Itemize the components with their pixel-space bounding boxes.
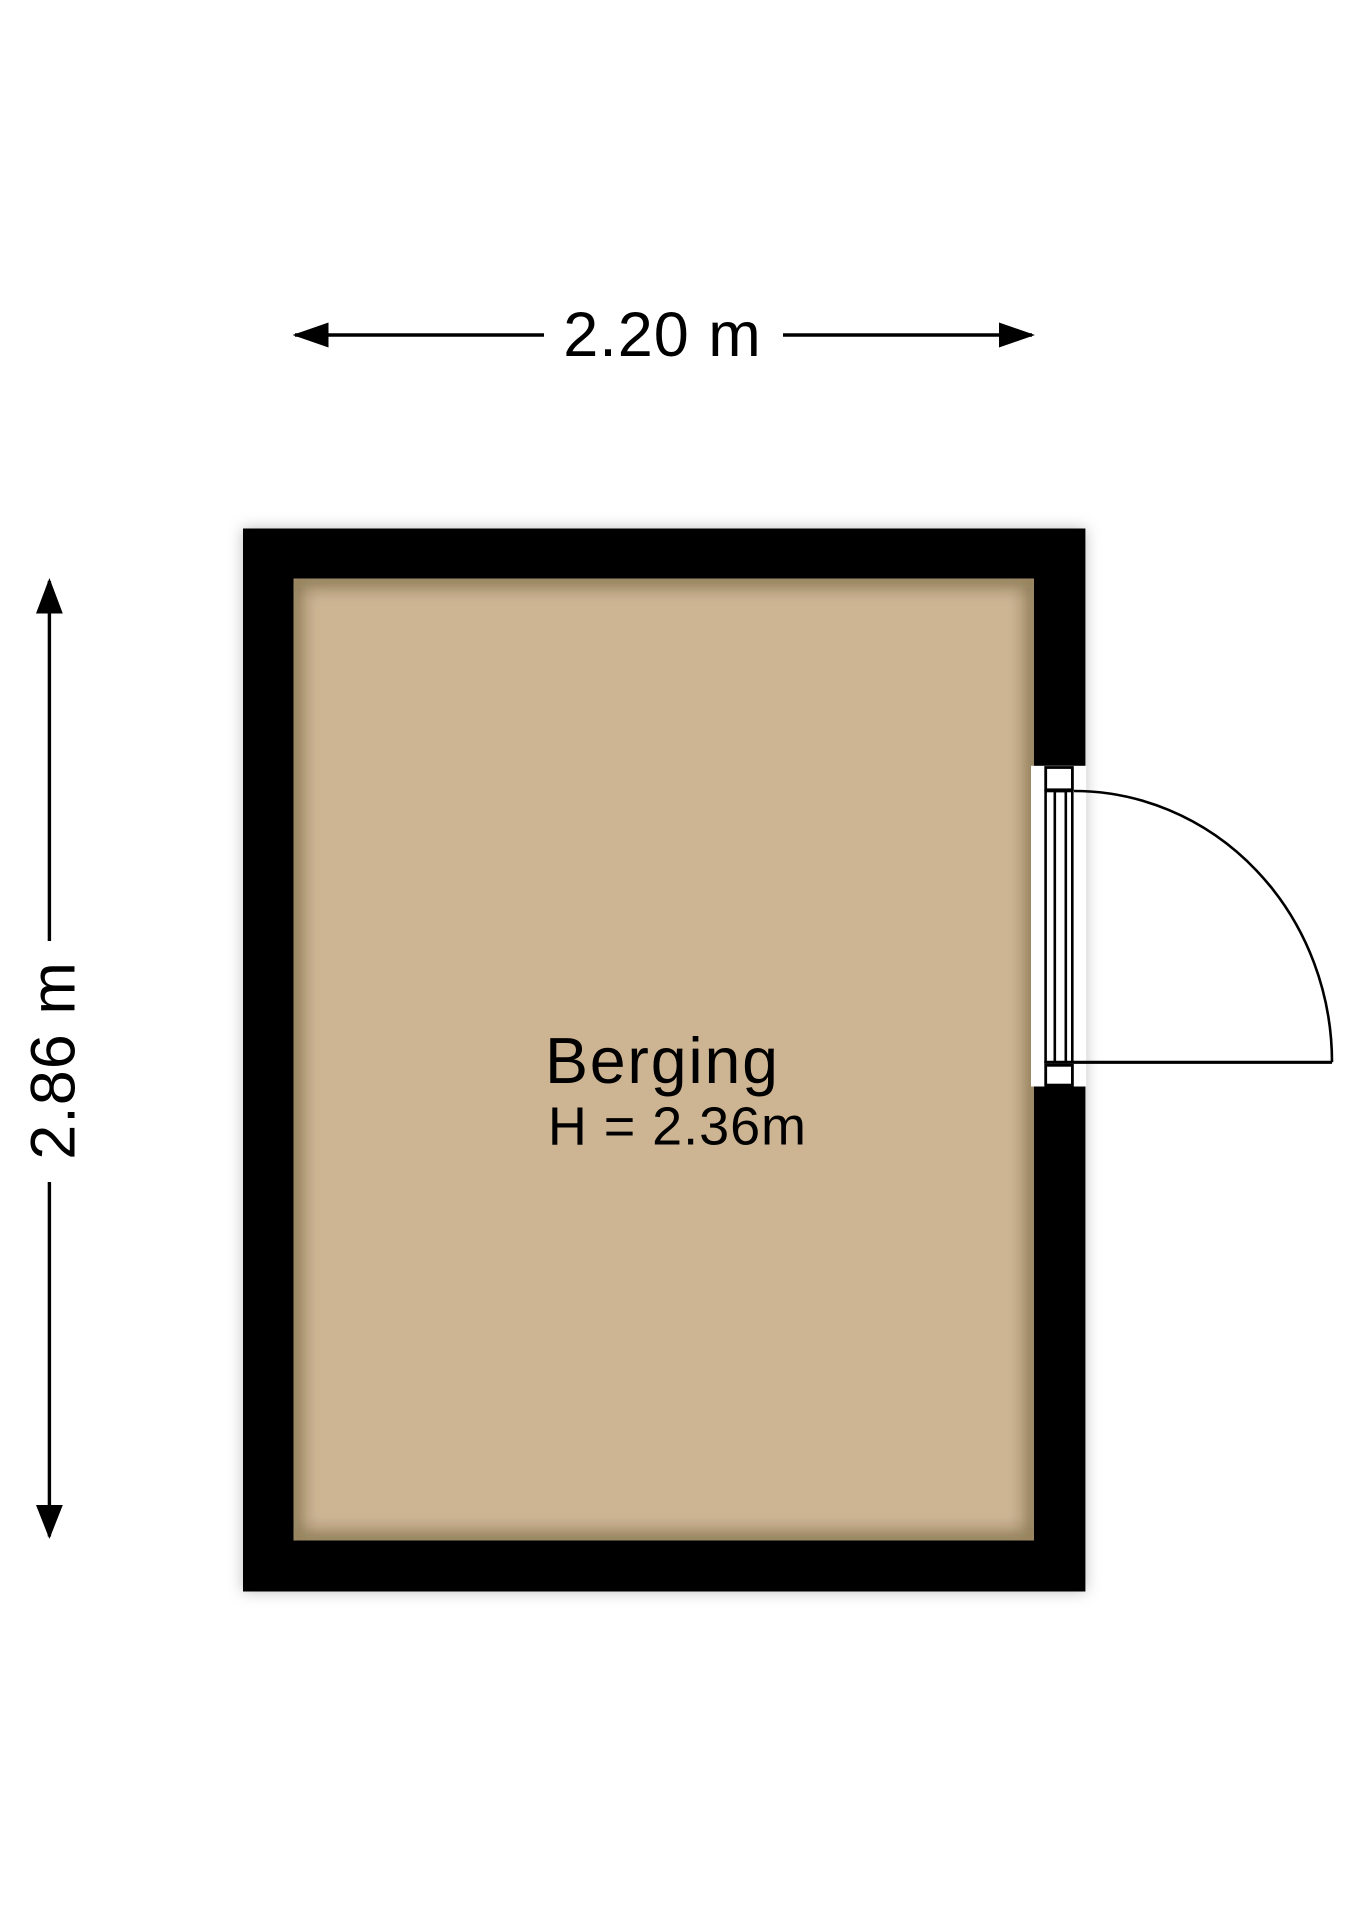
svg-text:H = 2.36m: H = 2.36m bbox=[548, 1097, 807, 1157]
svg-text:2.86 m: 2.86 m bbox=[19, 961, 89, 1160]
svg-text:2.20 m: 2.20 m bbox=[563, 300, 762, 370]
svg-text:Berging: Berging bbox=[545, 1025, 780, 1097]
